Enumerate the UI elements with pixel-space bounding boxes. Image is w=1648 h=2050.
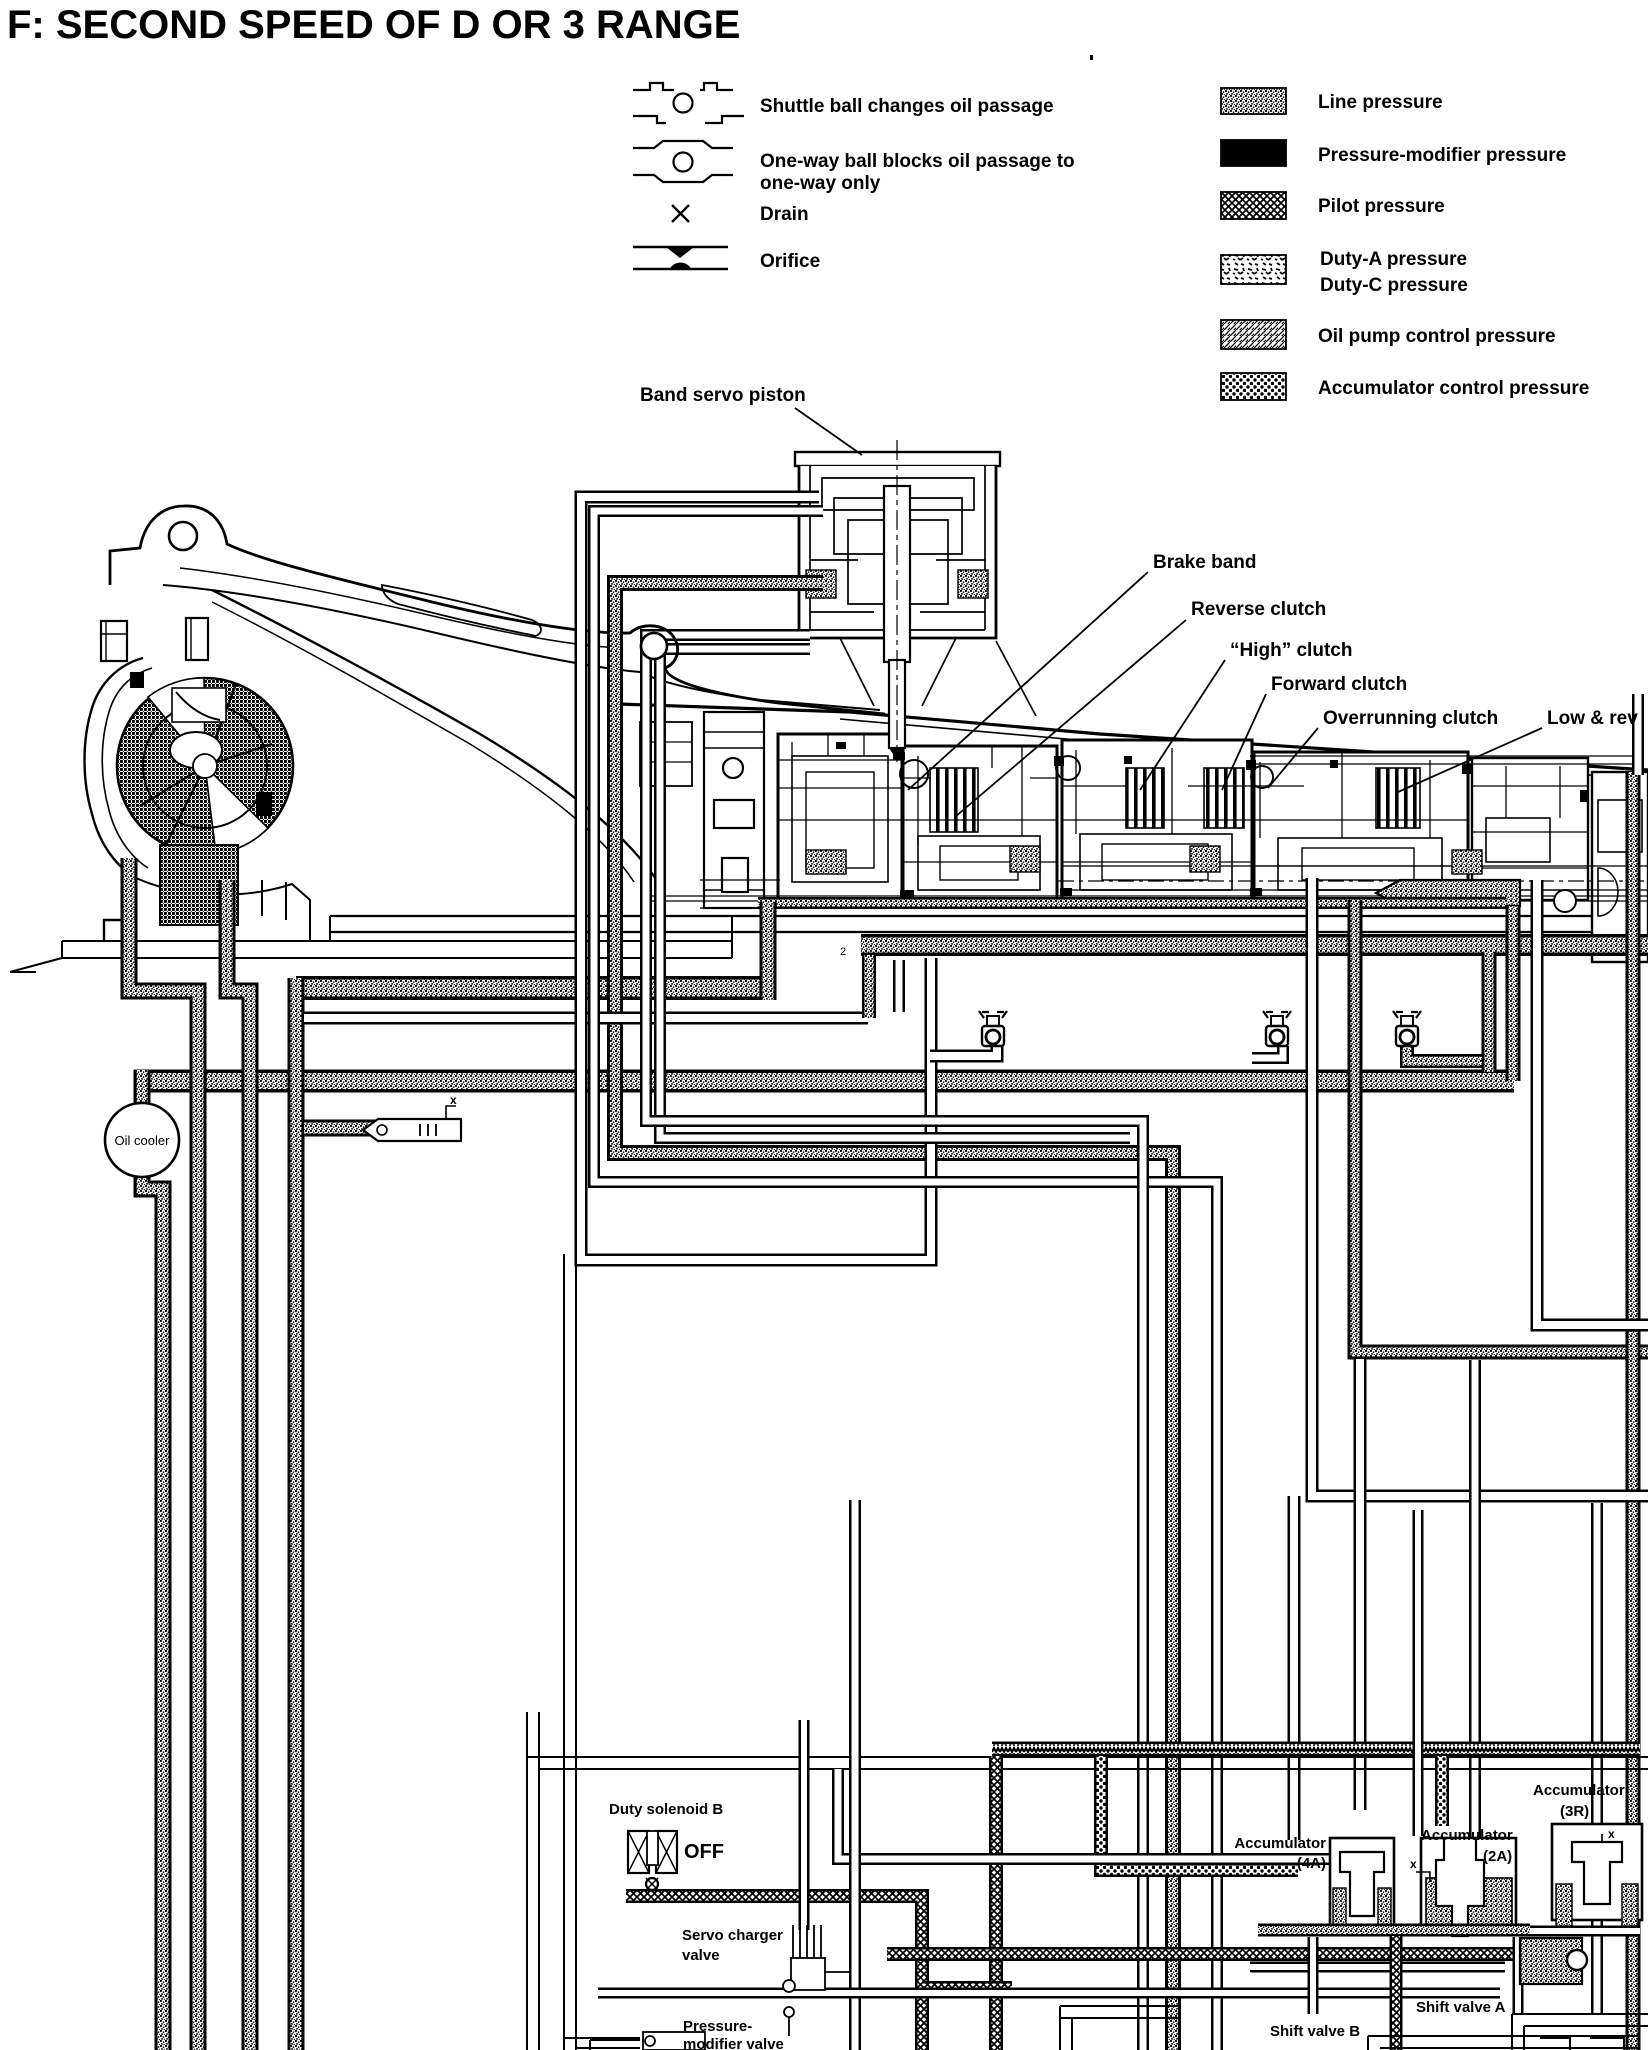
- svg-text:valve: valve: [682, 1947, 720, 1964]
- svg-text:x: x: [1608, 1827, 1615, 1841]
- svg-text:Oil pump control pressure: Oil pump control pressure: [1318, 326, 1556, 347]
- svg-text:Accumulator: Accumulator: [1533, 1782, 1625, 1799]
- svg-text:Servo charger: Servo charger: [682, 1927, 783, 1944]
- svg-text:(2A): (2A): [1483, 1848, 1512, 1865]
- svg-text:Duty-A pressure: Duty-A pressure: [1320, 249, 1467, 270]
- svg-text:Overrunning clutch: Overrunning clutch: [1323, 708, 1498, 729]
- svg-text:Band servo piston: Band servo piston: [640, 385, 806, 406]
- svg-text:(3R): (3R): [1560, 1803, 1589, 1820]
- svg-text:x: x: [450, 1093, 457, 1107]
- svg-text:OFF: OFF: [684, 1841, 724, 1863]
- svg-text:“High” clutch: “High” clutch: [1230, 640, 1352, 661]
- svg-text:Reverse clutch: Reverse clutch: [1191, 599, 1326, 620]
- svg-text:Pressure-: Pressure-: [683, 2018, 752, 2035]
- svg-text:Pressure-modifier pressure: Pressure-modifier pressure: [1318, 145, 1566, 166]
- svg-text:Duty solenoid B: Duty solenoid B: [609, 1801, 723, 1818]
- svg-text:Shuttle ball changes oil passa: Shuttle ball changes oil passage: [760, 96, 1054, 117]
- svg-text:Drain: Drain: [760, 204, 809, 225]
- svg-text:Shift valve B: Shift valve B: [1270, 2023, 1360, 2040]
- svg-text:Shift valve A: Shift valve A: [1416, 1999, 1506, 2016]
- svg-text:Pilot pressure: Pilot pressure: [1318, 196, 1445, 217]
- svg-text:Accumulator: Accumulator: [1234, 1835, 1326, 1852]
- svg-text:Duty-C pressure: Duty-C pressure: [1320, 275, 1468, 296]
- svg-text:Forward clutch: Forward clutch: [1271, 674, 1407, 695]
- svg-text:Low & rev: Low & rev: [1547, 708, 1638, 729]
- svg-text:Accumulator control pressure: Accumulator control pressure: [1318, 378, 1589, 399]
- svg-text:F: SECOND SPEED OF D OR 3 RANG: F: SECOND SPEED OF D OR 3 RANGE: [7, 3, 740, 47]
- svg-text:Oil cooler: Oil cooler: [115, 1133, 171, 1148]
- svg-text:x: x: [1410, 1857, 1417, 1871]
- svg-text:Accumulator: Accumulator: [1421, 1827, 1513, 1844]
- svg-text:Line pressure: Line pressure: [1318, 92, 1443, 113]
- svg-text:2: 2: [840, 946, 846, 958]
- svg-text:modifier valve: modifier valve: [683, 2036, 784, 2050]
- svg-text:one-way only: one-way only: [760, 173, 881, 194]
- svg-text:One-way ball blocks oil passag: One-way ball blocks oil passage to: [760, 151, 1075, 172]
- svg-text:Orifice: Orifice: [760, 251, 820, 272]
- svg-text:(4A): (4A): [1297, 1855, 1326, 1872]
- svg-text:Brake band: Brake band: [1153, 552, 1256, 573]
